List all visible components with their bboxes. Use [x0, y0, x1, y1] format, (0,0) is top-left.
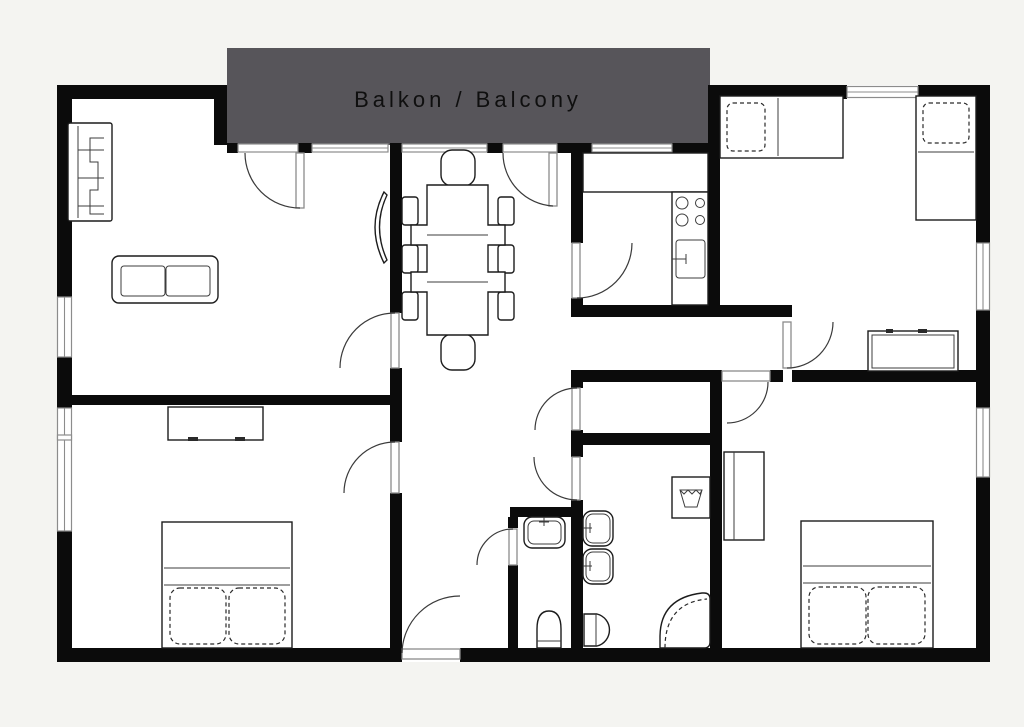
sofa-icon: [112, 256, 218, 303]
dresser-icon: [168, 407, 263, 441]
window-icon: [312, 144, 388, 152]
window-icon: [592, 144, 672, 152]
window-icon: [402, 144, 487, 152]
washing-machine-icon: [672, 477, 710, 518]
double-bed-icon: [801, 521, 933, 648]
window-icon: [977, 243, 990, 310]
wall: [214, 85, 227, 145]
wall: [976, 85, 990, 243]
wall: [976, 310, 990, 408]
wall: [770, 370, 783, 382]
bathroom-sink-icon: [583, 511, 613, 546]
dining-chair-icon: [402, 197, 418, 225]
wall: [508, 517, 518, 528]
window-icon: [977, 408, 990, 477]
wardrobe-icon: [724, 452, 764, 540]
dining-chair-icon: [402, 245, 418, 273]
window-icon: [847, 87, 918, 98]
wall: [510, 507, 580, 517]
bathroom-sink-icon: [583, 549, 613, 584]
wall: [792, 370, 976, 382]
wall: [571, 500, 583, 648]
floorplan-svg: Balkon / Balcony: [0, 0, 1024, 727]
wall: [672, 143, 710, 153]
wall: [460, 648, 990, 662]
wall: [571, 143, 583, 243]
toilet-icon: [584, 614, 609, 646]
wall: [390, 368, 402, 442]
dining-chair-icon: [402, 292, 418, 320]
single-bed-icon: [720, 96, 843, 158]
wall: [227, 143, 238, 153]
wall: [708, 85, 720, 317]
wall: [57, 648, 402, 662]
dining-chair-icon: [441, 334, 475, 370]
window-icon: [58, 408, 72, 531]
wall: [976, 477, 990, 662]
single-bed-icon: [916, 96, 976, 220]
balcony-label: Balkon / Balcony: [354, 87, 582, 112]
wall: [571, 433, 722, 445]
wall: [57, 395, 390, 405]
balcony: Balkon / Balcony: [227, 48, 710, 145]
double-bed-icon: [162, 522, 292, 648]
wall: [390, 143, 402, 313]
wall: [487, 143, 503, 153]
wall: [710, 382, 722, 648]
toilet-icon: [537, 611, 561, 648]
wall: [571, 305, 792, 317]
wall: [57, 531, 72, 662]
sofa-icon: [868, 329, 958, 371]
wall: [571, 370, 722, 382]
bathroom-sink-icon: [524, 517, 565, 548]
dining-chair-icon: [498, 292, 514, 320]
wall: [298, 143, 312, 153]
dining-chair-icon: [441, 150, 475, 186]
wardrobe-icon: [68, 123, 112, 221]
wall: [390, 493, 402, 662]
wall: [508, 565, 518, 648]
dining-chair-icon: [498, 245, 514, 273]
window-icon: [58, 297, 72, 357]
dining-chair-icon: [498, 197, 514, 225]
wall: [57, 85, 227, 99]
floorplan-page: Balkon / Balcony: [0, 0, 1024, 727]
